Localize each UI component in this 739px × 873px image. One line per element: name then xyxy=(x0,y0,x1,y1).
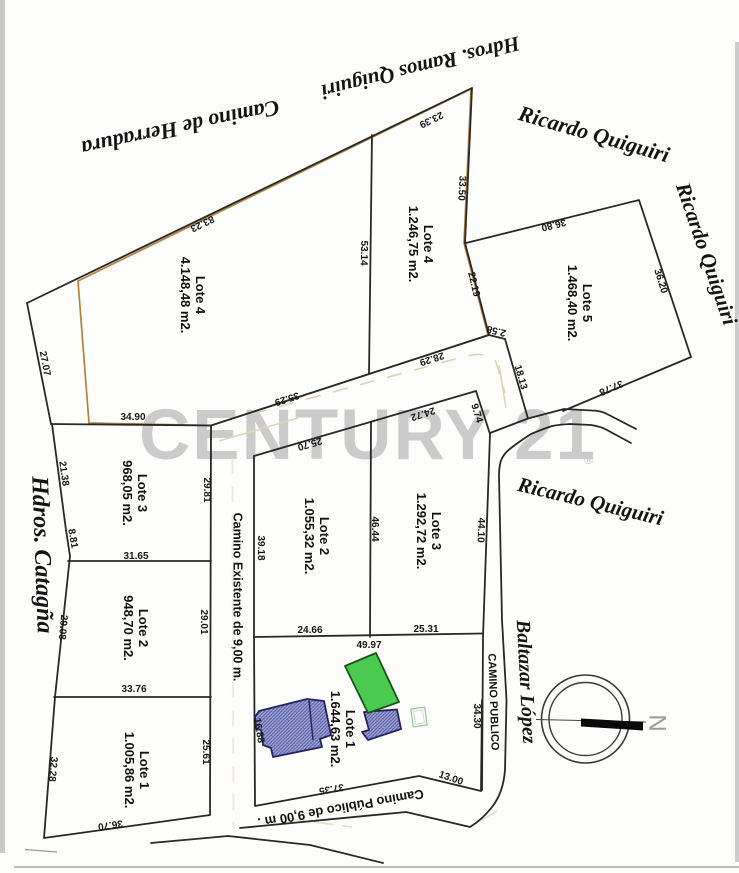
svg-text:1.644,63 m2.: 1.644,63 m2. xyxy=(328,691,343,768)
svg-text:Lote 3: Lote 3 xyxy=(429,512,444,550)
svg-text:4.148,48 m2.: 4.148,48 m2. xyxy=(178,257,193,334)
svg-text:33.76: 33.76 xyxy=(121,684,146,695)
svg-text:24.66: 24.66 xyxy=(297,625,322,636)
svg-text:Lote 4: Lote 4 xyxy=(421,225,436,264)
svg-text:1.468,40 m2.: 1.468,40 m2. xyxy=(565,265,580,342)
svg-text:Lote 3: Lote 3 xyxy=(135,474,150,512)
svg-text:N: N xyxy=(644,714,671,731)
svg-text:46.44: 46.44 xyxy=(369,516,380,541)
svg-text:948,70 m2.: 948,70 m2. xyxy=(121,595,136,661)
svg-text:34.30: 34.30 xyxy=(471,703,482,728)
svg-text:49.97: 49.97 xyxy=(356,640,381,651)
svg-text:Lote 2: Lote 2 xyxy=(136,609,151,647)
svg-text:1.055,32 m2.: 1.055,32 m2. xyxy=(302,498,317,575)
svg-text:968,05 m2.: 968,05 m2. xyxy=(120,460,135,526)
svg-text:Lote 1: Lote 1 xyxy=(137,751,152,789)
svg-text:Lote 4: Lote 4 xyxy=(193,276,208,315)
svg-text:Camino Existente de 9,00 m.: Camino Existente de 9,00 m. xyxy=(231,513,245,682)
svg-text:Lote 2: Lote 2 xyxy=(317,517,332,555)
svg-text:1.005,86 m2.: 1.005,86 m2. xyxy=(122,732,137,809)
svg-text:29.01: 29.01 xyxy=(198,609,209,634)
svg-text:33.50: 33.50 xyxy=(455,175,467,201)
svg-text:®: ® xyxy=(584,452,594,467)
svg-text:53.14: 53.14 xyxy=(358,240,369,266)
svg-text:1.246,75 m2.: 1.246,75 m2. xyxy=(406,206,421,283)
svg-text:32.28: 32.28 xyxy=(46,756,59,782)
svg-text:Lote 5: Lote 5 xyxy=(580,284,595,322)
svg-text:31.65: 31.65 xyxy=(123,551,148,562)
svg-text:39.18: 39.18 xyxy=(255,535,266,560)
svg-text:44.10: 44.10 xyxy=(475,517,487,543)
svg-text:Hdros. Catagña: Hdros. Catagña xyxy=(26,475,58,634)
svg-text:25.31: 25.31 xyxy=(413,624,438,635)
svg-text:34.90: 34.90 xyxy=(120,412,145,423)
svg-text:29.81: 29.81 xyxy=(201,477,212,502)
svg-text:25.61: 25.61 xyxy=(200,739,211,764)
svg-text:1.292,72 m2.: 1.292,72 m2. xyxy=(414,493,429,570)
svg-text:Lote 1: Lote 1 xyxy=(343,710,358,748)
